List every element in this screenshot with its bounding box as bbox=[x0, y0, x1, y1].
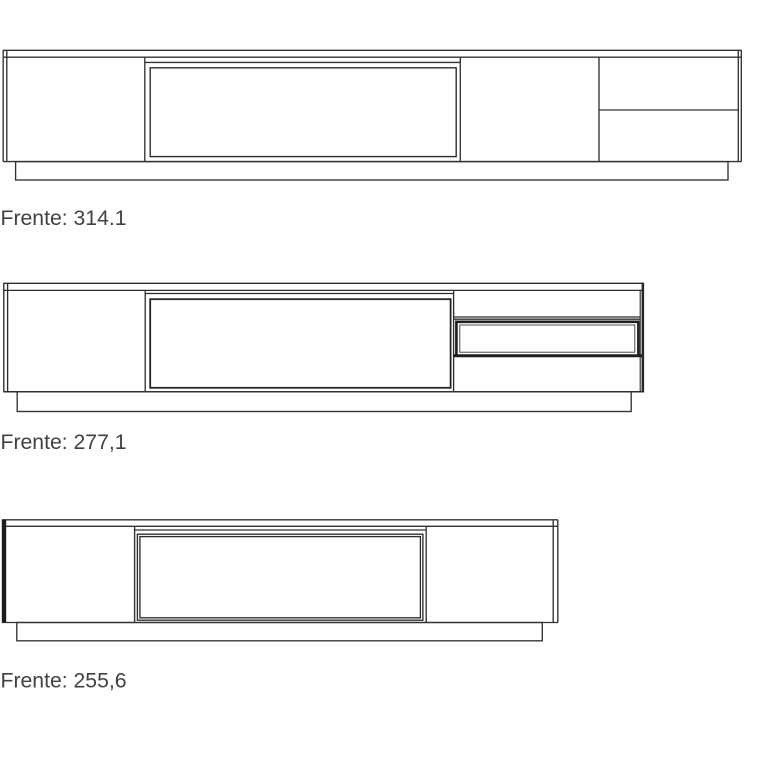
svg-text:Frente: 277,1: Frente: 277,1 bbox=[1, 431, 127, 454]
svg-text:Frente: 314.1: Frente: 314.1 bbox=[1, 207, 127, 230]
svg-text:Frente: 255,6: Frente: 255,6 bbox=[1, 670, 127, 693]
